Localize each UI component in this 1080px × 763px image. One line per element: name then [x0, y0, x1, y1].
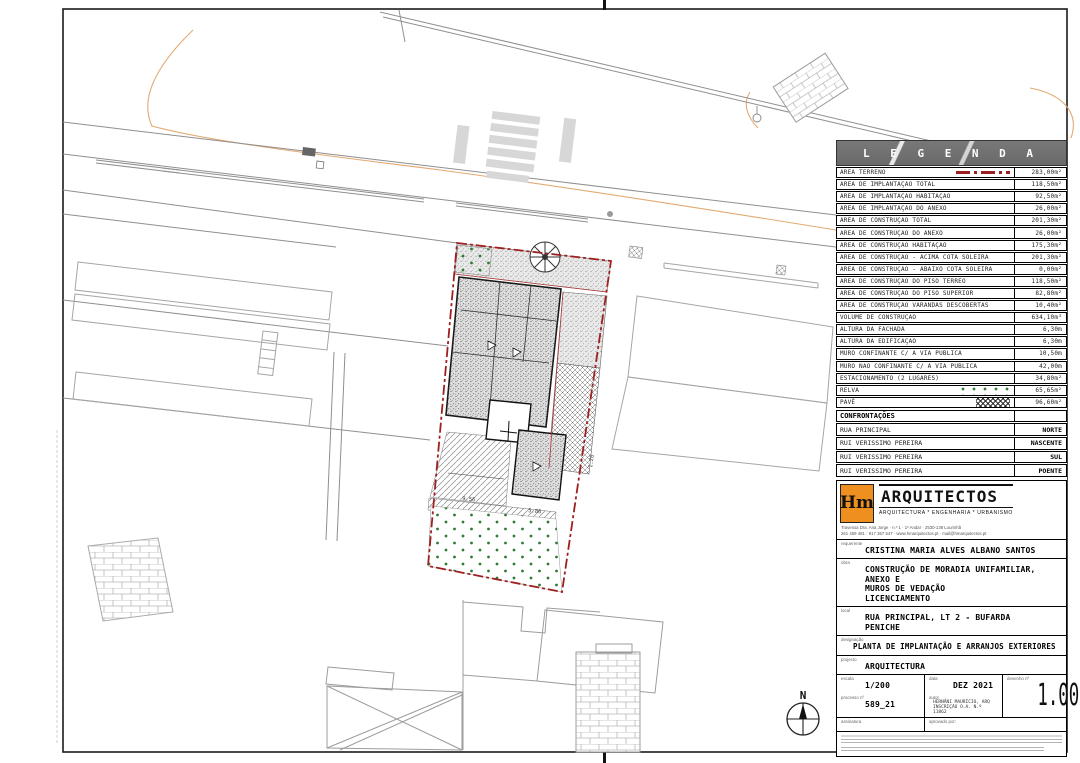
legend-row: ÁREA DE IMPLANTAÇÃO TOTAL 118,50m² [836, 179, 1067, 190]
legend-row-value: 42,00m [1014, 362, 1066, 371]
legend-row: ÁREA DE CONSTRUÇÃO DO PISO TÉRREO 118,50… [836, 276, 1067, 287]
processo-value: 589_21 [841, 700, 920, 710]
field-assinatura: assinatura [837, 718, 925, 731]
legend-row-label-cell: ÁREA DE CONSTRUÇÃO - ACIMA COTA SOLEIRA [837, 254, 1014, 261]
field-requerente: requerente CRISTINA MARIA ALVES ALBANO S… [837, 540, 1066, 560]
lot-right-strip-upper [557, 292, 607, 368]
obra-line1: CONSTRUÇÃO DE MORADIA UNIFAMILIAR, ANEXO… [841, 565, 1062, 584]
firm-address-line2: 261 459 481 · 917 367 547 · www.hmarquit… [841, 531, 1062, 537]
legend-row-label-cell: ALTURA DA FACHADA [837, 326, 1014, 333]
legend-row-label-cell: ÁREA DE CONSTRUÇÃO DO ANEXO [837, 230, 1014, 237]
firm-name: ARQUITECTOS [879, 484, 1013, 508]
signature-row: assinatura aprovado por: [837, 718, 1066, 732]
lot: 9.56 5.86 1.26 [428, 242, 611, 592]
drawing-sheet: 9.56 5.86 1.26 N L E G E N D A ÁREA TERR… [0, 0, 1080, 763]
autor-line2: INSCRIÇÃO O.A. N.º 11862 [929, 705, 998, 715]
legend-row-value: 10,50m [1014, 349, 1066, 358]
legend-row-label: ÁREA TERRENO [840, 169, 886, 176]
local-line1: RUA PRINCIPAL, LT 2 - BUFARDA [841, 613, 1062, 623]
designacao-value: PLANTA DE IMPLANTAÇÃO E ARRANJOS EXTERIO… [841, 642, 1062, 652]
legend-sample-swatch [976, 398, 1010, 407]
obra-line2: MUROS DE VEDAÇÃO [841, 584, 1062, 594]
legend-row-label: MURO NÃO CONFINANTE C/ A VIA PÚBLICA [840, 363, 977, 370]
field-desenho-num: desenho nº 1.00 [1003, 675, 1080, 717]
lot-planter [455, 245, 492, 276]
legend-row-label: ÁREA DE IMPLANTAÇÃO TOTAL [840, 181, 935, 188]
legend-row-label: ÁREA DE CONSTRUÇÃO - ACIMA COTA SOLEIRA [840, 254, 989, 261]
legend-title: L E G E N D A [863, 147, 1040, 160]
legend-row-label: ÁREA DE CONSTRUÇÃO DO PISO TÉRREO [840, 278, 966, 285]
legend-row-label: ÁREA DE CONSTRUÇÃO - ABAIXO COTA SOLEIRA [840, 266, 993, 273]
legend-row-label: ALTURA DA EDIFICAÇÃO [840, 338, 916, 345]
legend-sample-swatch [956, 171, 1010, 174]
confrontacao-row: RUI VERISSIMO PEREIRA SUL [836, 451, 1067, 464]
legend-row-value: 92,50m² [1014, 192, 1066, 201]
legend-row-label: ÁREA DE CONSTRUÇÃO DO ANEXO [840, 230, 943, 237]
field-projecto: projecto ARQUITECTURA [837, 656, 1066, 676]
legend-row-label-cell: ÁREA DE IMPLANTAÇÃO TOTAL [837, 181, 1014, 188]
legend-row-value: 283,00m² [1014, 168, 1066, 177]
firm-logo: Hm [840, 484, 874, 523]
legend-row-label-cell: VOLUME DE CONSTRUÇÃO [837, 314, 1014, 321]
legend-row: ÁREA DE CONSTRUÇÃO HABITAÇÃO 175,30m² [836, 240, 1067, 251]
fold-mark-top [603, 0, 606, 10]
legend-row-label: ÁREA DE CONSTRUÇÃO TOTAL [840, 217, 932, 224]
field-escala: escala 1/200 processo nº 589_21 [837, 675, 925, 717]
confrontacao-side: SUL [1014, 452, 1066, 463]
legend-row-label: ÁREA DE IMPLANTAÇÃO DO ANEXO [840, 205, 947, 212]
legend-row-label-cell: ÁREA TERRENO [837, 169, 1014, 176]
legend-row-label-cell: ÁREA DE IMPLANTAÇÃO DO ANEXO [837, 205, 1014, 212]
legend-row-value: 175,30m² [1014, 241, 1066, 250]
desenho-num-value: 1.00 [1037, 681, 1079, 711]
legend-row-value: 201,30m² [1014, 216, 1066, 225]
legend-row-label: ÁREA DE IMPLANTAÇÃO HABITAÇÃO [840, 193, 951, 200]
dimension-label: 1.26 [588, 454, 596, 468]
field-label: aprovado por: [929, 719, 1062, 724]
legend-row-label-cell: MURO CONFINANTE C/ A VIA PÚBLICA [837, 350, 1014, 357]
legend-row: ÁREA DE CONSTRUÇÃO DO ANEXO 26,00m² [836, 227, 1067, 238]
field-designacao: designação PLANTA DE IMPLANTAÇÃO E ARRAN… [837, 636, 1066, 656]
legend-row-value: 6,30m [1014, 337, 1066, 346]
fine-print-lines [841, 735, 1062, 743]
compass-icon: N [787, 689, 819, 735]
title-block: L E G E N D A ÁREA TERRENO 283,00m² ÁREA… [836, 140, 1067, 752]
legend-row-label-cell: ÁREA DE IMPLANTAÇÃO HABITAÇÃO [837, 193, 1014, 200]
legend-header: L E G E N D A [836, 140, 1067, 166]
legend-row-label-cell: ALTURA DA EDIFICAÇÃO [837, 338, 1014, 345]
legend-row: ÁREA DE IMPLANTAÇÃO DO ANEXO 26,00m² [836, 203, 1067, 214]
legend-row-label: VOLUME DE CONSTRUÇÃO [840, 314, 916, 321]
legend-row-value: 6,30m [1014, 325, 1066, 334]
firm-tagline: ARQUITECTURA * ENGENHARIA * URBANISMO [879, 510, 1013, 516]
legend-row-label-cell: MURO NÃO CONFINANTE C/ A VIA PÚBLICA [837, 363, 1014, 370]
confrontacao-side: POENTE [1014, 465, 1066, 476]
legend-row: ÁREA DE CONSTRUÇÃO - ABAIXO COTA SOLEIRA… [836, 264, 1067, 275]
legend-row-label-cell: ÁREA DE CONSTRUÇÃO HABITAÇÃO [837, 242, 1014, 249]
legend-row-value: 65,65m² [1014, 386, 1066, 395]
escala-value: 1/200 [841, 681, 920, 691]
legend-row-value: 634,10m³ [1014, 313, 1066, 322]
confrontacao-name: RUI VERISSIMO PEREIRA [837, 467, 1014, 475]
fold-mark-bottom [603, 752, 606, 763]
confrontacoes-table: CONFRONTAÇÕES RUA PRINCIPAL NORTE RUI VE… [836, 410, 1067, 477]
legend-row-value: 201,30m² [1014, 253, 1066, 262]
legend-row-label-cell: ESTACIONAMENTO (2 LUGARES) [837, 375, 1014, 382]
legend-row-value: 10,40m² [1014, 301, 1066, 310]
legend-row-value: 96,60m² [1014, 398, 1066, 407]
legend-row-label: ESTACIONAMENTO (2 LUGARES) [840, 375, 939, 382]
field-local: local RUA PRINCIPAL, LT 2 - BUFARDA PENI… [837, 607, 1066, 636]
legend-row-label-cell: ÁREA DE CONSTRUÇÃO - ABAIXO COTA SOLEIRA [837, 266, 1014, 273]
legend-row-value: 34,80m² [1014, 374, 1066, 383]
legend-row-label: ÁREA DE CONSTRUÇÃO VARANDAS DESCOBERTAS [840, 302, 989, 309]
field-obra: obra CONSTRUÇÃO DE MORADIA UNIFAMILIAR, … [837, 559, 1066, 607]
confrontacao-row: RUA PRINCIPAL NORTE [836, 423, 1067, 436]
legend-row: MURO CONFINANTE C/ A VIA PÚBLICA 10,50m [836, 348, 1067, 359]
field-aprovado: aprovado por: [925, 718, 1066, 731]
field-data-autor: data DEZ 2021 autor HERNÂNI MAURÍCIO, AR… [925, 675, 1003, 717]
confrontacao-side: NORTE [1014, 424, 1066, 435]
annex [512, 430, 566, 500]
legend-row: ALTURA DA FACHADA 6,30m [836, 324, 1067, 335]
legend-row-label-cell: ÁREA DE CONSTRUÇÃO VARANDAS DESCOBERTAS [837, 302, 1014, 309]
legend-row-label-cell: ÁREA DE CONSTRUÇÃO DO PISO TÉRREO [837, 278, 1014, 285]
confrontacoes-header-side [1014, 411, 1066, 422]
legend-row-label: PAVÊ [840, 399, 855, 406]
legend-row-label: MURO CONFINANTE C/ A VIA PÚBLICA [840, 350, 962, 357]
legend-row: ALTURA DA EDIFICAÇÃO 6,30m [836, 336, 1067, 347]
legend-row-label-cell: RELVA [837, 386, 1014, 395]
neighbor-parcels-right [612, 246, 833, 471]
confrontacao-row: RUI VERISSIMO PEREIRA NASCENTE [836, 437, 1067, 450]
confrontacao-row: RUI VERISSIMO PEREIRA POENTE [836, 464, 1067, 477]
confrontacao-name: RUI VERISSIMO PEREIRA [837, 453, 1014, 461]
field-label: assinatura [841, 719, 920, 724]
requerente-value: CRISTINA MARIA ALVES ALBANO SANTOS [841, 546, 1062, 556]
confrontacoes-title: CONFRONTAÇÕES [837, 412, 1014, 420]
legend-row: ÁREA TERRENO 283,00m² [836, 167, 1067, 178]
legend-row: PAVÊ 96,60m² [836, 397, 1067, 408]
legend-row: MURO NÃO CONFINANTE C/ A VIA PÚBLICA 42,… [836, 361, 1067, 372]
legend-row: RELVA 65,65m² [836, 385, 1067, 396]
legend-row-value: 0,00m² [1014, 265, 1066, 274]
confrontacao-name: RUI VERISSIMO PEREIRA [837, 439, 1014, 447]
legend-row-value: 118,50m² [1014, 277, 1066, 286]
legend-row-label-cell: ÁREA DE CONSTRUÇÃO DO PISO SUPERIOR [837, 290, 1014, 297]
legend-sample-swatch [960, 386, 1010, 395]
fine-print [837, 732, 1066, 756]
confrontacoes-header: CONFRONTAÇÕES [836, 410, 1067, 423]
legend-row: ÁREA DE CONSTRUÇÃO - ACIMA COTA SOLEIRA … [836, 252, 1067, 263]
legend-row: ÁREA DE IMPLANTAÇÃO HABITAÇÃO 92,50m² [836, 191, 1067, 202]
legend-row: VOLUME DE CONSTRUÇÃO 634,10m³ [836, 312, 1067, 323]
data-value: DEZ 2021 [929, 681, 998, 691]
tree-icon [530, 242, 560, 272]
neighbor-buildings-left [72, 262, 332, 426]
driveway-hatch [430, 432, 511, 506]
legend-row-label: ÁREA DE CONSTRUÇÃO DO PISO SUPERIOR [840, 290, 973, 297]
title-block-fields: Hm ARQUITECTOS ARQUITECTURA * ENGENHARIA… [836, 480, 1067, 757]
legend-row-label: ALTURA DA FACHADA [840, 326, 905, 333]
legend-table: ÁREA TERRENO 283,00m² ÁREA DE IMPLANTAÇÃ… [836, 167, 1067, 408]
fine-print-lines [841, 746, 1044, 751]
legend-row-label-cell: ÁREA DE CONSTRUÇÃO TOTAL [837, 217, 1014, 224]
legend-row-value: 118,50m² [1014, 180, 1066, 189]
compass-north-label: N [800, 689, 807, 702]
firm-address: Travessa Dra. Ana Jorge · n.º 1 · 1º And… [837, 524, 1066, 540]
crosswalk [452, 105, 577, 188]
confrontacao-name: RUA PRINCIPAL [837, 426, 1014, 434]
legend-row: ÁREA DE CONSTRUÇÃO VARANDAS DESCOBERTAS … [836, 300, 1067, 311]
confrontacao-side: NASCENTE [1014, 438, 1066, 449]
legend-row-value: 82,80m² [1014, 289, 1066, 298]
legend-row: ÁREA DE CONSTRUÇÃO DO PISO SUPERIOR 82,8… [836, 288, 1067, 299]
scale-date-grid: escala 1/200 processo nº 589_21 data DEZ… [837, 675, 1066, 718]
obra-line3: LICENCIAMENTO [841, 594, 1062, 604]
legend-row: ÁREA DE CONSTRUÇÃO TOTAL 201,30m² [836, 215, 1067, 226]
legend-row-label-cell: PAVÊ [837, 398, 1014, 407]
legend-row-value: 26,00m² [1014, 204, 1066, 213]
legend-row-label: RELVA [840, 387, 859, 394]
local-line2: PENICHE [841, 623, 1062, 633]
legend-row-value: 26,00m² [1014, 228, 1066, 237]
firm-logo-row: Hm ARQUITECTOS ARQUITECTURA * ENGENHARIA… [837, 481, 1066, 524]
projecto-value: ARQUITECTURA [841, 662, 1062, 672]
legend-row-label: ÁREA DE CONSTRUÇÃO HABITAÇÃO [840, 242, 947, 249]
legend-row: ESTACIONAMENTO (2 LUGARES) 34,80m² [836, 373, 1067, 384]
